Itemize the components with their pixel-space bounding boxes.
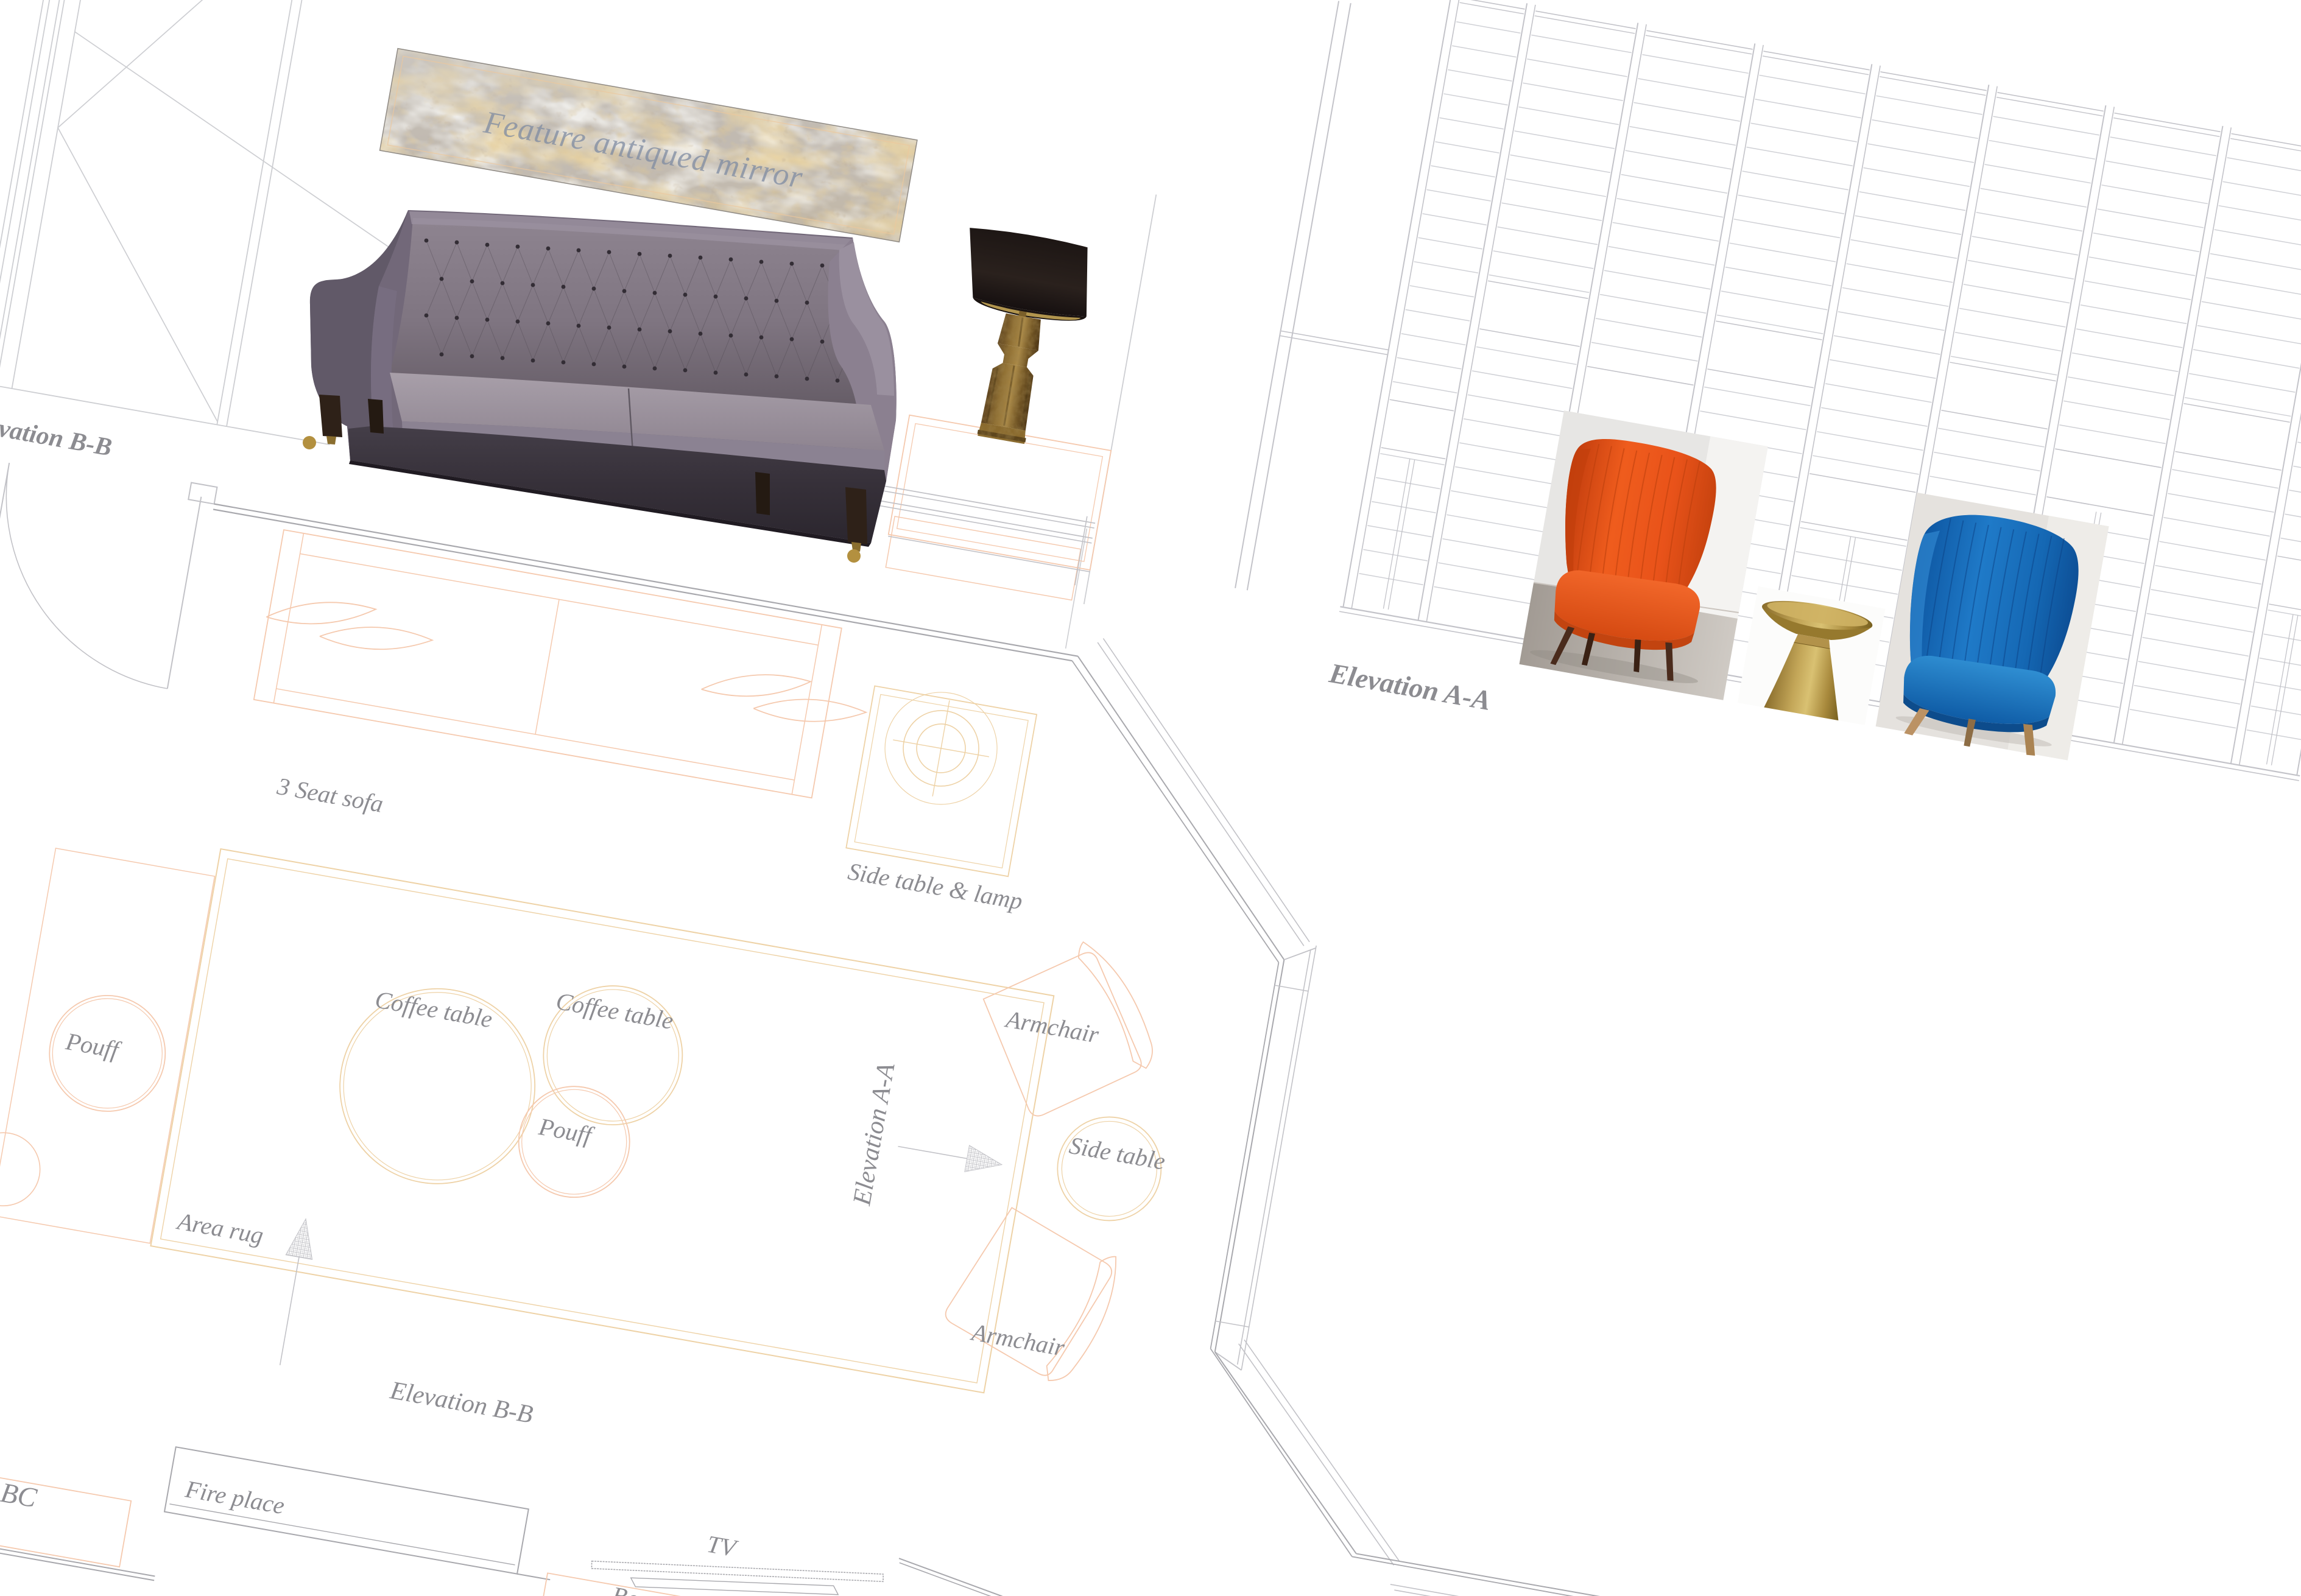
svg-text:BC: BC (0, 1477, 40, 1514)
